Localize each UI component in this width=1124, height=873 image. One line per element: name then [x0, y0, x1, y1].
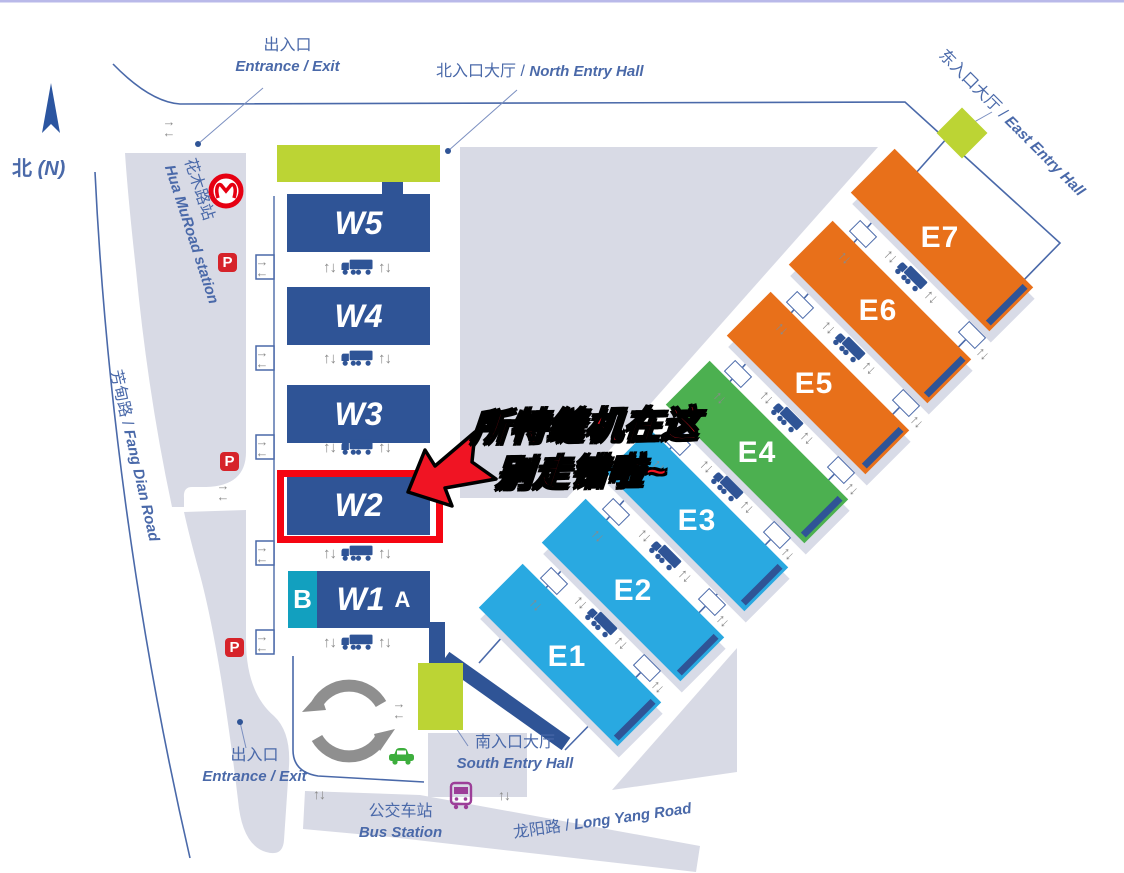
metro-icon [211, 176, 241, 206]
left-arrow-icon: ← [253, 553, 271, 564]
updown-arrows-icon: ↑↓ [378, 259, 391, 276]
updown-arrows-icon: ↑↓ [323, 259, 336, 276]
bus-station-label: 公交车站 Bus Station [338, 802, 463, 842]
updown-arrows-icon: ↑↓ [323, 350, 336, 367]
hall-e4-label: E4 [738, 436, 777, 470]
left-arrow-icon: ← [160, 127, 178, 138]
loading-row: ↑↓ ↑↓ [307, 542, 407, 564]
gate-arrows-icon: →← [253, 436, 271, 458]
south-entry-en: South Entry Hall [445, 754, 585, 774]
left-arrow-icon: ← [253, 447, 271, 458]
annotation-line1: 所特缝机在这 [448, 402, 725, 453]
hall-w5: W5 [287, 194, 430, 252]
north-gate-en: Entrance / Exit [205, 57, 370, 77]
left-arrow-icon: ← [253, 358, 271, 369]
compass-label: 北 (N) [12, 156, 65, 182]
hall-e1-label: E1 [548, 640, 587, 674]
wing-a-label: A [395, 587, 411, 613]
hall-w4: W4 [287, 287, 430, 345]
gate-arrows-icon: →← [253, 542, 271, 564]
truck-icon [340, 633, 374, 651]
updown-arrows-icon: ↑↓ [378, 634, 391, 651]
hall-w3-label: W3 [335, 396, 383, 433]
parking-icon: P [225, 638, 244, 657]
hall-w5-label: W5 [335, 205, 383, 242]
long-yang-zh: 龙阳路 [512, 818, 562, 842]
compass-zh: 北 [12, 158, 32, 180]
north-entry-hall-label: 北入口大厅 / North Entry Hall [436, 62, 644, 83]
hall-w3: W3 [287, 385, 430, 443]
updown-arrows-icon: ↑↓ [323, 439, 336, 456]
gate-arrows-icon: →← [253, 631, 271, 653]
wing-b-label: B [293, 584, 312, 615]
venue-map: W5 W4 W3 W2 B W1 A ↑↓ ↑↓ ↑↓ ↑↓ ↑↓ ↑↓ ↑↓ … [0, 0, 1124, 873]
gate-arrows-icon: ↑↓ [313, 786, 325, 802]
hall-w4-label: W4 [335, 298, 383, 335]
hall-e2-label: E2 [614, 574, 653, 608]
annotation-callout: 所特缝机在这 别走错啦~ [444, 402, 724, 498]
truck-icon [340, 544, 374, 562]
north-entry-zh: 北入口大厅 [436, 63, 516, 80]
updown-arrows-icon: ↑↓ [323, 634, 336, 651]
updown-arrows-icon: ↑↓ [378, 439, 391, 456]
compass-north-icon [42, 83, 60, 133]
page-top-divider [0, 0, 1124, 3]
south-gate-zh: 出入口 [182, 746, 327, 767]
car-icon [389, 748, 414, 765]
updown-arrows-icon: ↑↓ [323, 545, 336, 562]
south-gate-label: 出入口 Entrance / Exit [182, 746, 327, 786]
hall-e3-label: E3 [678, 504, 717, 538]
parking-label: P [224, 453, 234, 470]
red-highlight-box [277, 470, 443, 543]
gate-arrows-icon: →← [160, 116, 178, 138]
south-entry-hall-label: 南入口大厅 South Entry Hall [445, 733, 585, 773]
hall-e6-label: E6 [859, 294, 898, 328]
w1-south-connector [429, 622, 445, 668]
gate-arrows-icon: ↑↓ [498, 787, 510, 803]
hall-e5-label: E5 [795, 367, 834, 401]
left-arrow-icon: ← [390, 709, 408, 720]
hall-w1-wing-b: B [288, 571, 317, 628]
gate-arrows-icon: →← [253, 347, 271, 369]
truck-icon [340, 438, 374, 456]
truck-icon [340, 349, 374, 367]
truck-icon [340, 258, 374, 276]
left-arrow-icon: ← [253, 267, 271, 278]
north-entry-en: North Entry Hall [529, 63, 643, 80]
annotation-line2: 别走错啦~ [444, 448, 720, 498]
updown-arrows-icon: ↑↓ [378, 545, 391, 562]
north-entry-hall-block [277, 145, 440, 182]
hall-e7-label: E7 [921, 221, 960, 255]
left-arrow-icon: ← [214, 491, 232, 502]
separator: / [516, 63, 529, 80]
loading-row: ↑↓ ↑↓ [307, 347, 407, 369]
gate-arrows-icon: →← [214, 480, 232, 502]
gate-arrows-icon: →← [253, 256, 271, 278]
parking-icon: P [220, 452, 239, 471]
parking-label: P [229, 639, 239, 656]
south-entry-zh: 南入口大厅 [445, 733, 585, 754]
loading-row: ↑↓ ↑↓ [307, 256, 407, 278]
loading-row: ↑↓ ↑↓ [307, 436, 407, 458]
north-gate-zh: 出入口 [205, 36, 370, 57]
north-gate-label: 出入口 Entrance / Exit [205, 36, 370, 76]
south-entry-hall-block [418, 663, 463, 730]
compass-en: (N) [38, 158, 66, 180]
hall-w1-label: W1 [337, 581, 385, 618]
gate-arrows-icon: →← [390, 698, 408, 720]
hall-w1: W1 A [317, 571, 430, 628]
left-arrow-icon: ← [253, 642, 271, 653]
updown-arrows-icon: ↑↓ [378, 350, 391, 367]
south-gate-en: Entrance / Exit [182, 767, 327, 787]
bus-station-en: Bus Station [338, 823, 463, 843]
loading-row: ↑↓ ↑↓ [307, 631, 407, 653]
bus-station-zh: 公交车站 [338, 802, 463, 823]
